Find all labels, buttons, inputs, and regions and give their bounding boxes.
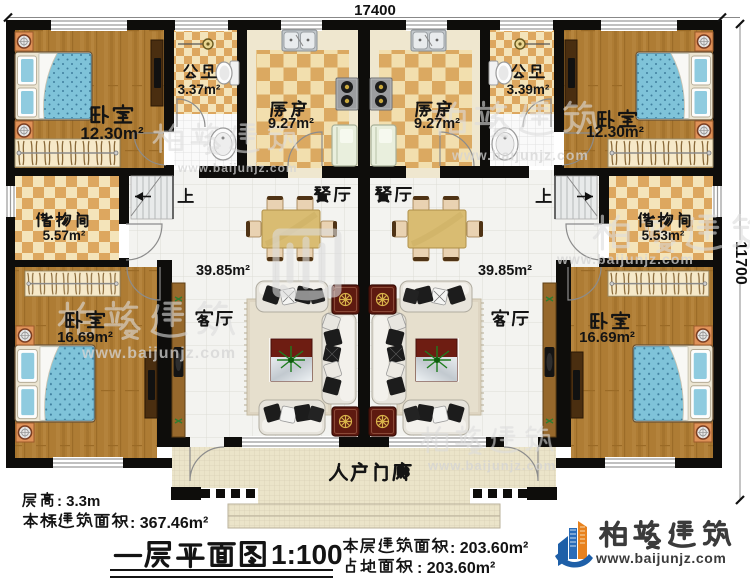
svg-text:www.baijunjz.com: www.baijunjz.com — [595, 550, 726, 566]
svg-text:9.27m²: 9.27m² — [414, 116, 460, 132]
svg-text:12.30m²: 12.30m² — [80, 124, 144, 143]
svg-text:39.85m²: 39.85m² — [196, 263, 250, 279]
svg-text:www.baijunjz.com: www.baijunjz.com — [177, 161, 298, 175]
svg-text:3.39m²: 3.39m² — [507, 82, 550, 97]
svg-text:: 203.60m²: : 203.60m² — [450, 540, 528, 557]
svg-text:16.69m²: 16.69m² — [579, 329, 635, 346]
svg-text:5.57m²: 5.57m² — [43, 228, 86, 243]
svg-text:5.53m²: 5.53m² — [642, 228, 685, 243]
svg-text:3.37m²: 3.37m² — [178, 82, 221, 97]
svg-text:16.69m²: 16.69m² — [57, 329, 113, 346]
svg-text:: 367.46m²: : 367.46m² — [130, 515, 208, 532]
svg-text:17400: 17400 — [354, 2, 396, 19]
svg-text:www.baijunjz.com: www.baijunjz.com — [451, 147, 589, 163]
svg-text:: 203.60m²: : 203.60m² — [417, 560, 495, 577]
svg-text:1:100: 1:100 — [271, 539, 343, 570]
svg-text:: 3.3m: : 3.3m — [57, 493, 100, 510]
svg-text:www.baijunjz.com: www.baijunjz.com — [81, 345, 236, 362]
svg-text:www.baijunjz.com: www.baijunjz.com — [556, 251, 694, 267]
svg-text:www.baijunjz.com: www.baijunjz.com — [427, 458, 556, 473]
svg-text:12.30m²: 12.30m² — [586, 124, 644, 141]
svg-text:39.85m²: 39.85m² — [478, 263, 532, 279]
svg-text:9.27m²: 9.27m² — [268, 116, 314, 132]
